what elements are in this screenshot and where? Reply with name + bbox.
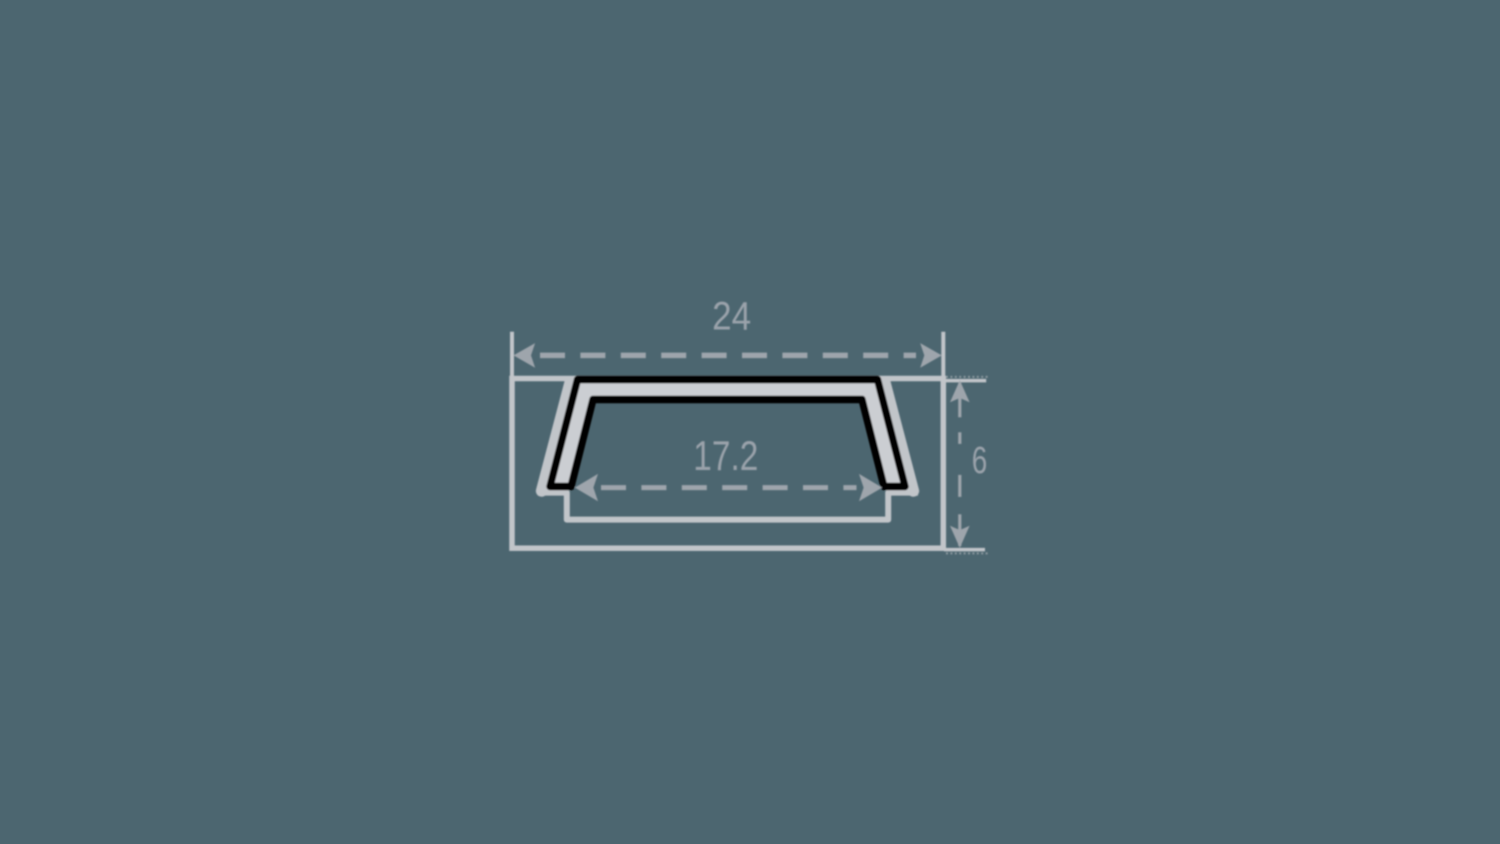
- svg-text:6: 6: [972, 440, 988, 482]
- svg-text:24: 24: [712, 295, 751, 339]
- svg-text:17.2: 17.2: [693, 432, 758, 479]
